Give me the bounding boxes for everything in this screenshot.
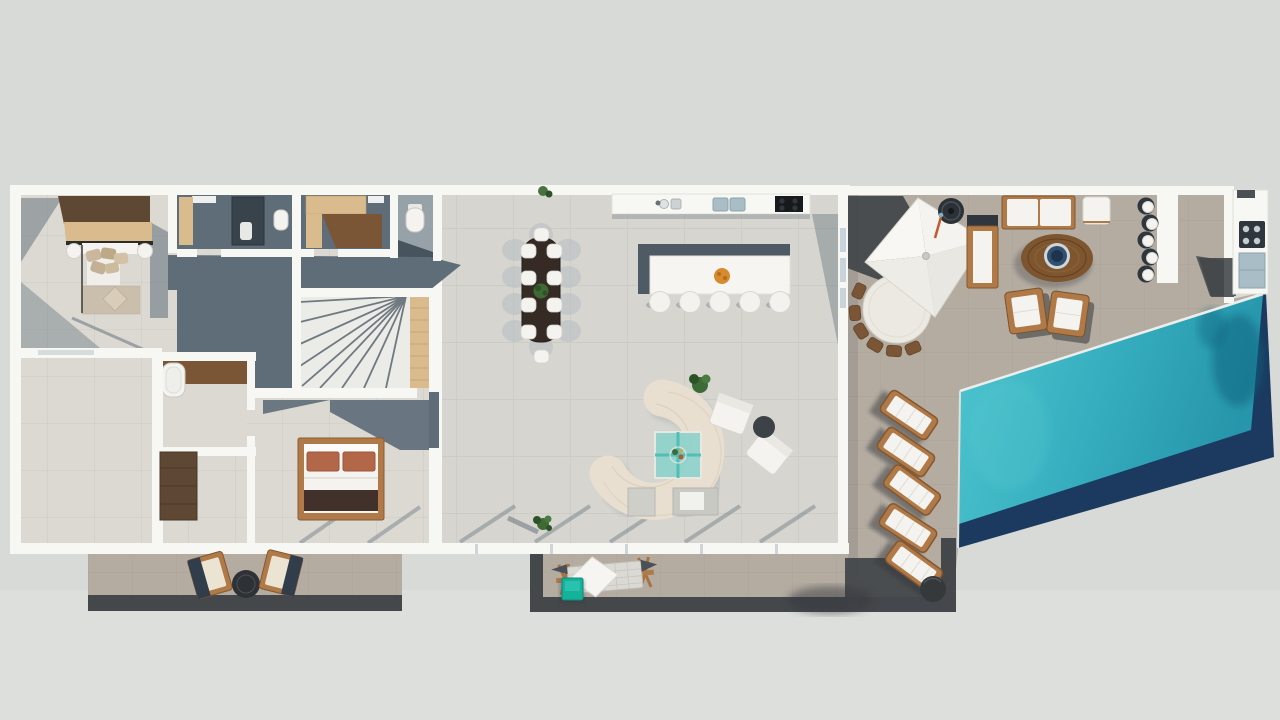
decor: [672, 449, 678, 455]
dark-side-table: [753, 416, 775, 438]
outdoor-bar-counter: [1157, 190, 1178, 283]
hall-floor-2: [255, 352, 292, 392]
torch-tip: [939, 213, 943, 217]
bed-foot: [304, 513, 378, 518]
hall-floor: [177, 290, 292, 352]
teal-pouf-cube: [560, 578, 584, 603]
prep-sink: [730, 198, 745, 211]
wall-south: [152, 543, 849, 554]
decor: [679, 455, 684, 460]
outdoor-armchair: [1004, 287, 1054, 341]
closet-shelf-left: [306, 214, 322, 248]
wall-closet-a2: [221, 249, 296, 257]
wardrobe-mirror: [240, 222, 252, 240]
bathroom: [160, 353, 247, 447]
wall-bath-right2: [247, 436, 255, 543]
wall-int-1: [168, 185, 177, 253]
sink: [671, 199, 681, 209]
wall-int-3: [390, 185, 398, 258]
table-plant-detail: [535, 285, 541, 291]
rust-pillow: [343, 452, 375, 471]
closet-door: [368, 196, 384, 203]
bed-throw: [304, 490, 378, 511]
closet-door: [192, 196, 216, 203]
table-plant-detail: [543, 291, 548, 296]
closet-shelf: [179, 197, 193, 245]
guest-bedroom: [298, 438, 384, 520]
fruit-bowl: [714, 268, 730, 284]
palm-shadow: [788, 586, 872, 614]
toilet: [274, 210, 288, 230]
master-bed-frame: [64, 222, 152, 241]
fire-bowl: [1051, 250, 1063, 262]
wall-closet-b2: [338, 249, 396, 257]
glass-pane: [840, 258, 846, 282]
glass-pane: [840, 228, 846, 252]
prep-sink: [713, 198, 728, 211]
master-door-glass: [38, 350, 94, 355]
outdoor-chaise: [967, 215, 998, 288]
ottoman: [1083, 197, 1110, 224]
fruit: [717, 272, 721, 276]
wall-closet-b: [300, 249, 314, 257]
toilet: [406, 208, 424, 232]
stair-landing-wood: [410, 296, 429, 388]
sink-bowl: [660, 200, 669, 209]
water-highlight: [970, 380, 1050, 490]
wall-closet-a: [177, 249, 197, 257]
outdoor-armchair: [1045, 291, 1095, 345]
master-shadow-b: [150, 222, 168, 318]
closet-shelf-top: [306, 196, 366, 214]
decor: [679, 449, 683, 453]
outdoor-sofa: [1002, 196, 1075, 229]
glass-pane: [840, 288, 846, 308]
staircase: [300, 296, 429, 388]
round-stool: [67, 244, 82, 259]
wall-living-west-upper: [429, 288, 439, 392]
wardrobe-dresser: [160, 452, 197, 520]
wall-bedroom-top: [255, 388, 417, 398]
wall-bath-right: [247, 352, 255, 410]
bathtub-inner: [166, 367, 181, 393]
wall-stairs-top: [292, 288, 439, 297]
wall-bath-top: [152, 352, 256, 361]
corridor-floor: [168, 255, 461, 290]
cube-table-top: [680, 492, 704, 510]
floorplan-canvas: [0, 0, 1280, 720]
fruit: [723, 276, 727, 280]
wall-int-4: [433, 185, 441, 261]
grill: [1239, 221, 1265, 248]
kettle: [656, 201, 661, 206]
round-stool: [138, 244, 153, 259]
rust-pillow: [307, 452, 339, 471]
kitchen-hood: [1237, 190, 1255, 198]
floorplan-svg: [0, 0, 1280, 720]
cooktop: [775, 196, 803, 212]
powder-room: [406, 204, 424, 232]
wall-west: [10, 185, 21, 359]
wall-int-2: [292, 185, 301, 390]
cube-table: [628, 488, 655, 516]
patio-side-table: [232, 570, 260, 598]
pergola-finial: [923, 253, 930, 260]
master-bed-headboard: [58, 196, 150, 224]
lounger-side-table: [920, 576, 946, 602]
counter-shadow: [612, 214, 810, 219]
wall-living-west-lower: [429, 448, 439, 543]
wall-shadow-strip: [848, 195, 858, 612]
pouf-top: [565, 581, 580, 591]
